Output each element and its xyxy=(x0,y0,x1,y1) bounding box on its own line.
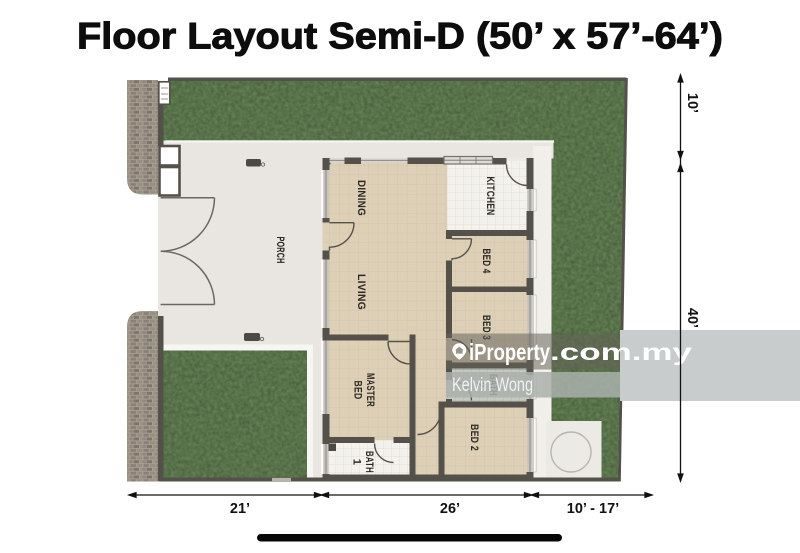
svg-text:BED 2: BED 2 xyxy=(468,424,480,451)
svg-text:DINING: DINING xyxy=(355,180,367,216)
svg-text:LIVING: LIVING xyxy=(355,274,367,310)
svg-text:40’: 40’ xyxy=(684,308,700,328)
svg-text:10’ - 17’: 10’ - 17’ xyxy=(567,501,619,517)
svg-text:1: 1 xyxy=(351,459,363,466)
svg-text:MASTER: MASTER xyxy=(364,373,376,407)
svg-text:BED 4: BED 4 xyxy=(480,249,492,274)
svg-text:PORCH: PORCH xyxy=(274,237,286,264)
svg-text:21’: 21’ xyxy=(230,501,250,517)
svg-text:iProperty: iProperty xyxy=(469,339,550,365)
svg-text:26’: 26’ xyxy=(440,501,460,517)
svg-text:KITCHEN: KITCHEN xyxy=(484,177,496,216)
svg-text:BATH: BATH xyxy=(363,451,375,473)
svg-text:Kelvin Wong: Kelvin Wong xyxy=(452,374,533,396)
svg-text:.com.my: .com.my xyxy=(550,339,692,365)
svg-text:BED: BED xyxy=(352,381,364,400)
svg-text:Floor Layout Semi-D (50’ x 57’: Floor Layout Semi-D (50’ x 57’-64’) xyxy=(77,16,723,57)
svg-text:10’: 10’ xyxy=(684,93,700,113)
